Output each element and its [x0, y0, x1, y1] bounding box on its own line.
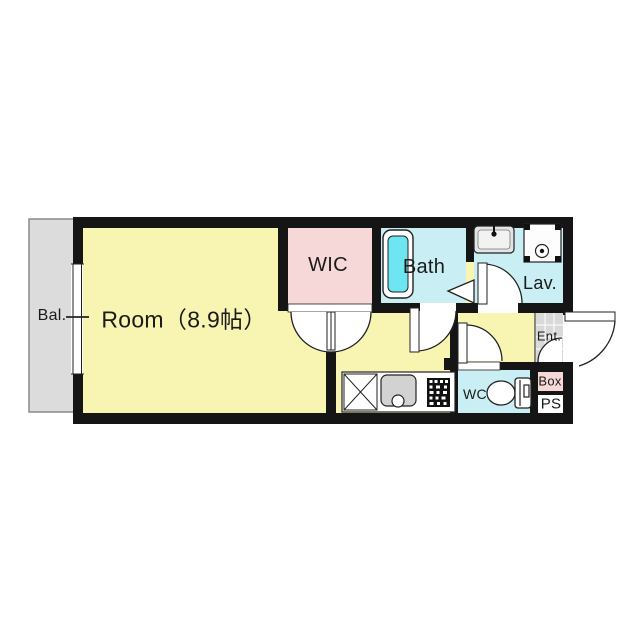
entrance-label: Ent. — [537, 330, 561, 343]
kitchen-sink — [381, 375, 416, 407]
balcony-label: Bal. — [38, 308, 67, 324]
box-label: Box — [538, 375, 561, 388]
lavatory-sink — [474, 226, 514, 253]
kitchen-counter — [342, 372, 455, 412]
wc-label: WC — [463, 387, 487, 401]
faucet-icon — [491, 231, 496, 236]
washing-machine-pan — [524, 224, 561, 262]
stove — [427, 378, 450, 407]
lavatory-label: Lav. — [523, 274, 557, 292]
floor-plan: Bal. Room（8.9帖） WIC Bath Lav. Ent. WC Bo… — [0, 0, 640, 640]
faucet-icon — [392, 395, 404, 407]
bath-label: Bath — [403, 257, 445, 277]
main-room-label: Room（8.9帖） — [101, 309, 266, 332]
wic-label: WIC — [308, 255, 348, 275]
pipe-space-label: PS — [541, 397, 562, 412]
toilet — [487, 378, 531, 408]
floor-plan-drawing — [0, 0, 640, 640]
